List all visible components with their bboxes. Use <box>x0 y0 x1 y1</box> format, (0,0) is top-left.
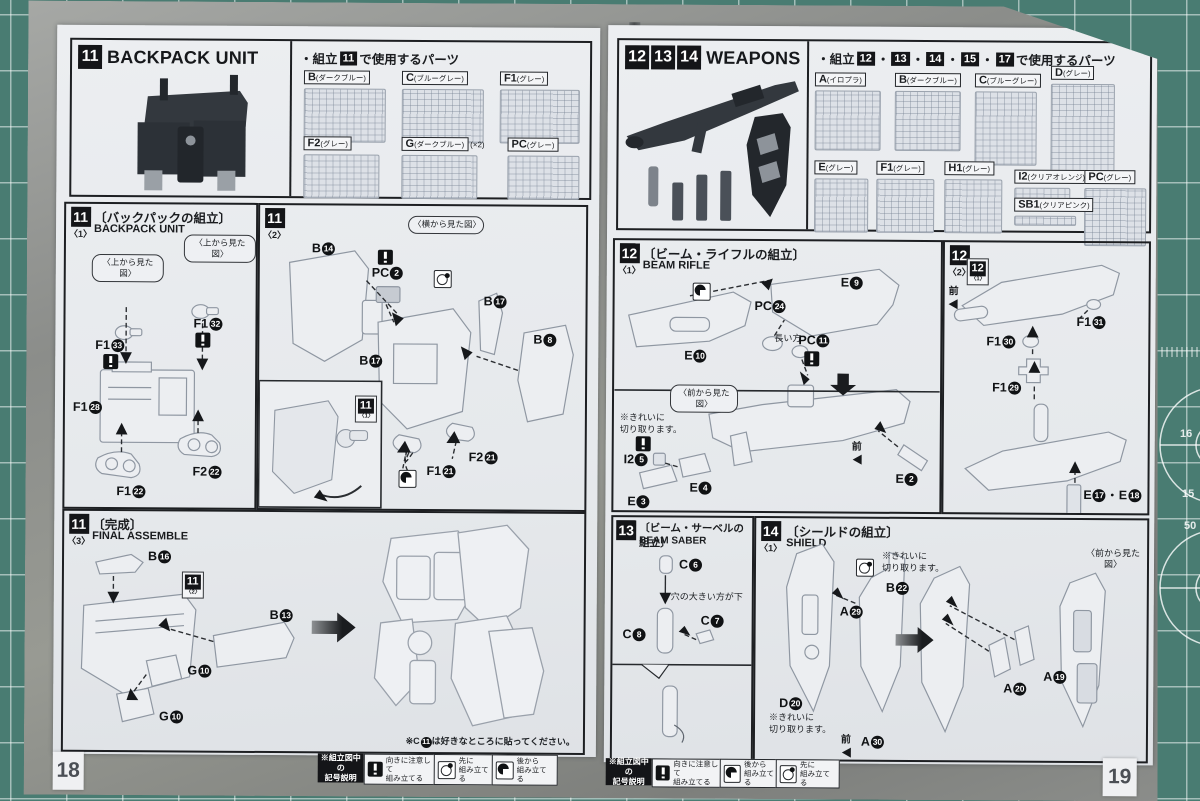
diagram-art-11-2 <box>258 205 586 510</box>
left-header-box: 11 BACKPACK UNIT ・組立 11 で使用するパーツ <box>69 38 592 200</box>
legend-label: ※組立図中の 記号説明 <box>606 758 652 785</box>
runner-B: B(ダークブルー) <box>304 67 386 142</box>
warning-icon <box>636 436 651 451</box>
legend-item-orientation: 向きに注意して 組み立てる <box>364 754 442 785</box>
section-13-badge: 13 <box>651 45 675 69</box>
section-12-2-box: 12 〈2〉 <box>941 240 1151 515</box>
section-13-box: 13 〔ビーム・サーベルの組立〕 BEAM SABER <box>610 515 754 761</box>
page-number-19: 19 <box>1103 758 1137 796</box>
section-11-2-box: 11 〈2〉 <box>256 203 588 512</box>
runner-C: C(ブルーグレー) <box>974 70 1041 165</box>
mat-number: 16 <box>1180 428 1192 440</box>
runner-F1: F1(グレー) <box>500 68 580 143</box>
runner-G: G(ダークブルー)(×2) <box>401 134 484 200</box>
assemble-first-icon <box>438 761 456 779</box>
assemble-first-icon <box>780 765 797 783</box>
right-page-title: WEAPONS <box>706 47 801 69</box>
view-callout: 〈横から見た図〉 <box>408 216 484 234</box>
section-11-3-box: 11 〈3〉 〔完成〕 FINAL ASSEMBLE <box>61 509 586 755</box>
runner-PC: PC(グレー) <box>507 134 579 199</box>
runner-B: B(ダークブルー) <box>895 70 961 151</box>
view-callout: 〈前から見た図〉 <box>1078 546 1148 574</box>
warning-icon <box>195 333 210 348</box>
header-divider <box>289 41 292 196</box>
right-page: 12 13 14 WEAPONS <box>604 25 1157 765</box>
legend-item-orientation: 向きに注意して 組み立てる <box>652 758 728 787</box>
assemble-first-icon <box>856 559 874 577</box>
view-callout: 〈上から見た図〉 <box>184 234 256 263</box>
cut-cleanly-note: ※きれいに 切り取ります。 <box>882 551 944 575</box>
ref-badge-12-1: 12 〈1〉 <box>967 258 989 285</box>
placement-note: ※C11は好きなところに貼ってください。 <box>406 736 575 749</box>
legend-item-after: 後から 組み立てる <box>720 759 784 788</box>
left-page-title: BACKPACK UNIT <box>107 47 258 69</box>
runner-SB1: SB1(クリアピンク) <box>1014 195 1094 226</box>
runner-H1: H1(グレー) <box>944 158 1002 233</box>
section-14-box: 14 〈1〉 〔シールドの組立〕 SHIELD <box>753 516 1149 763</box>
warning-icon <box>656 765 671 780</box>
section-11-badge: 11 <box>78 45 102 69</box>
mat-number: 50 <box>1184 520 1196 532</box>
header-divider <box>806 41 809 229</box>
runner-F2: F2(グレー) <box>303 133 379 198</box>
assemble-after-icon <box>724 764 741 782</box>
runner-E: E(グレー) <box>814 157 868 232</box>
photo-of-manual: { "mat": { "ruler_numbers": ["16", "15",… <box>0 0 1200 800</box>
view-callout: 〈前から見た図〉 <box>670 384 738 413</box>
metal-backing-sheet: 11 BACKPACK UNIT ・組立 11 で使用するパーツ <box>24 1 1163 801</box>
ref-badge-11-2: 11 〈2〉 <box>182 571 204 598</box>
assemble-after-icon <box>398 470 416 488</box>
legend-item-first: 先に 組み立てる <box>776 759 840 788</box>
cut-cleanly-note: ※きれいに 切り取ります。 <box>620 412 682 436</box>
backpack-photo <box>89 74 290 195</box>
runner-D: D(グレー) <box>1050 63 1115 178</box>
runner-A: A(イロプラ) <box>815 69 881 150</box>
hole-size-hint: 穴の大きい方が下 <box>671 591 751 603</box>
view-callout: 〈上から見た図〉 <box>92 254 164 283</box>
front-direction: 前 <box>949 282 959 309</box>
runner-C: C(ブルーグレー) <box>402 68 484 143</box>
mat-number: 15 <box>1182 488 1194 500</box>
front-direction: 前 <box>841 731 851 758</box>
warning-icon <box>103 354 118 369</box>
warning-icon <box>378 250 393 265</box>
page-number-18: 18 <box>53 752 84 790</box>
ref-badge-11-1: 11 〈1〉 <box>355 396 377 423</box>
legend-label: ※組立図中の 記号説明 <box>318 753 364 782</box>
section-14-badge: 14 <box>677 46 701 70</box>
diagram-art-12-1 <box>613 240 941 512</box>
assemble-after-icon <box>496 761 514 779</box>
warning-icon <box>368 762 383 777</box>
section-12-badge: 12 <box>625 45 649 69</box>
cut-cleanly-note: ※きれいに 切り取ります。 <box>769 712 831 736</box>
left-page: 11 BACKPACK UNIT ・組立 11 で使用するパーツ <box>53 25 600 757</box>
legend-item-first: 先に 組み立てる <box>434 754 500 785</box>
assemble-first-icon <box>434 270 452 288</box>
weapons-photo <box>624 74 803 225</box>
section-12-1-box: 12 〈1〉 〔ビーム・ライフルの組立〕 BEAM RIFLE <box>611 238 943 514</box>
front-direction: 前 <box>852 438 862 465</box>
warning-icon <box>804 351 819 366</box>
parts-used-heading: ・組立 11 で使用するパーツ <box>300 48 459 68</box>
right-header-box: 12 13 14 WEAPONS <box>616 38 1152 233</box>
section-11-1-box: 11 〈1〉 〔バックパックの組立〕 BACKPACK UNIT <box>62 202 258 510</box>
legend-item-after: 後から 組み立てる <box>492 754 558 785</box>
runner-F1: F1(グレー) <box>876 158 934 233</box>
assemble-after-icon <box>693 283 711 301</box>
